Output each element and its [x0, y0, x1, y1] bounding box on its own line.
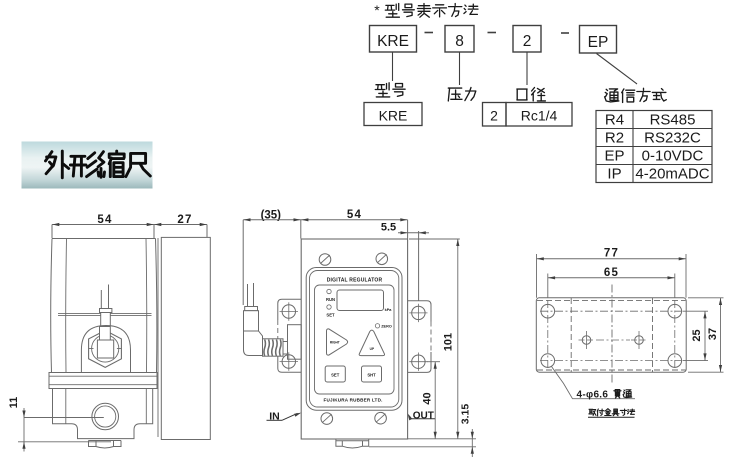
svg-text:OUT: OUT — [413, 411, 434, 422]
svg-text:37: 37 — [707, 328, 719, 340]
svg-text:UP: UP — [370, 347, 375, 351]
svg-text:SET: SET — [326, 313, 335, 318]
svg-text:4-20mADC: 4-20mADC — [635, 166, 709, 183]
svg-text:2: 2 — [490, 108, 498, 124]
svg-text:EP: EP — [604, 148, 624, 165]
svg-text:SET: SET — [331, 372, 340, 377]
svg-text:Rc1/4: Rc1/4 — [521, 108, 558, 124]
svg-text:65: 65 — [604, 267, 619, 279]
svg-text:RS485: RS485 — [650, 112, 696, 129]
svg-text:25: 25 — [691, 329, 703, 341]
svg-text:R4: R4 — [605, 112, 624, 129]
svg-text:SHT: SHT — [367, 372, 376, 377]
svg-text:40: 40 — [422, 392, 434, 404]
svg-text:5.5: 5.5 — [381, 222, 396, 234]
svg-text:DIGITAL REGULATOR: DIGITAL REGULATOR — [327, 277, 383, 283]
svg-text:77: 77 — [604, 248, 619, 260]
svg-text:kPa: kPa — [385, 308, 393, 312]
svg-text:EP: EP — [588, 34, 609, 51]
svg-text:8: 8 — [455, 33, 464, 50]
svg-text:R2: R2 — [605, 130, 624, 147]
svg-text:KRE: KRE — [379, 108, 408, 124]
svg-text:11: 11 — [8, 397, 20, 409]
svg-text:RUN: RUN — [326, 297, 335, 302]
svg-text:3.15: 3.15 — [459, 404, 471, 425]
svg-text:KRE: KRE — [377, 33, 409, 50]
svg-text:ZERO: ZERO — [381, 324, 392, 328]
svg-text:0-10VDC: 0-10VDC — [642, 148, 704, 165]
svg-text:4-φ6.6: 4-φ6.6 — [577, 390, 609, 401]
svg-text:54: 54 — [347, 209, 362, 221]
svg-text:FUJIKURA RUBBER LTD.: FUJIKURA RUBBER LTD. — [323, 398, 382, 403]
svg-text:RS232C: RS232C — [644, 130, 701, 147]
svg-text:*: * — [374, 2, 380, 18]
svg-text:101: 101 — [443, 333, 455, 351]
svg-text:RIGHT: RIGHT — [330, 341, 340, 345]
svg-text:IP: IP — [607, 166, 621, 183]
svg-text:2: 2 — [523, 33, 532, 50]
